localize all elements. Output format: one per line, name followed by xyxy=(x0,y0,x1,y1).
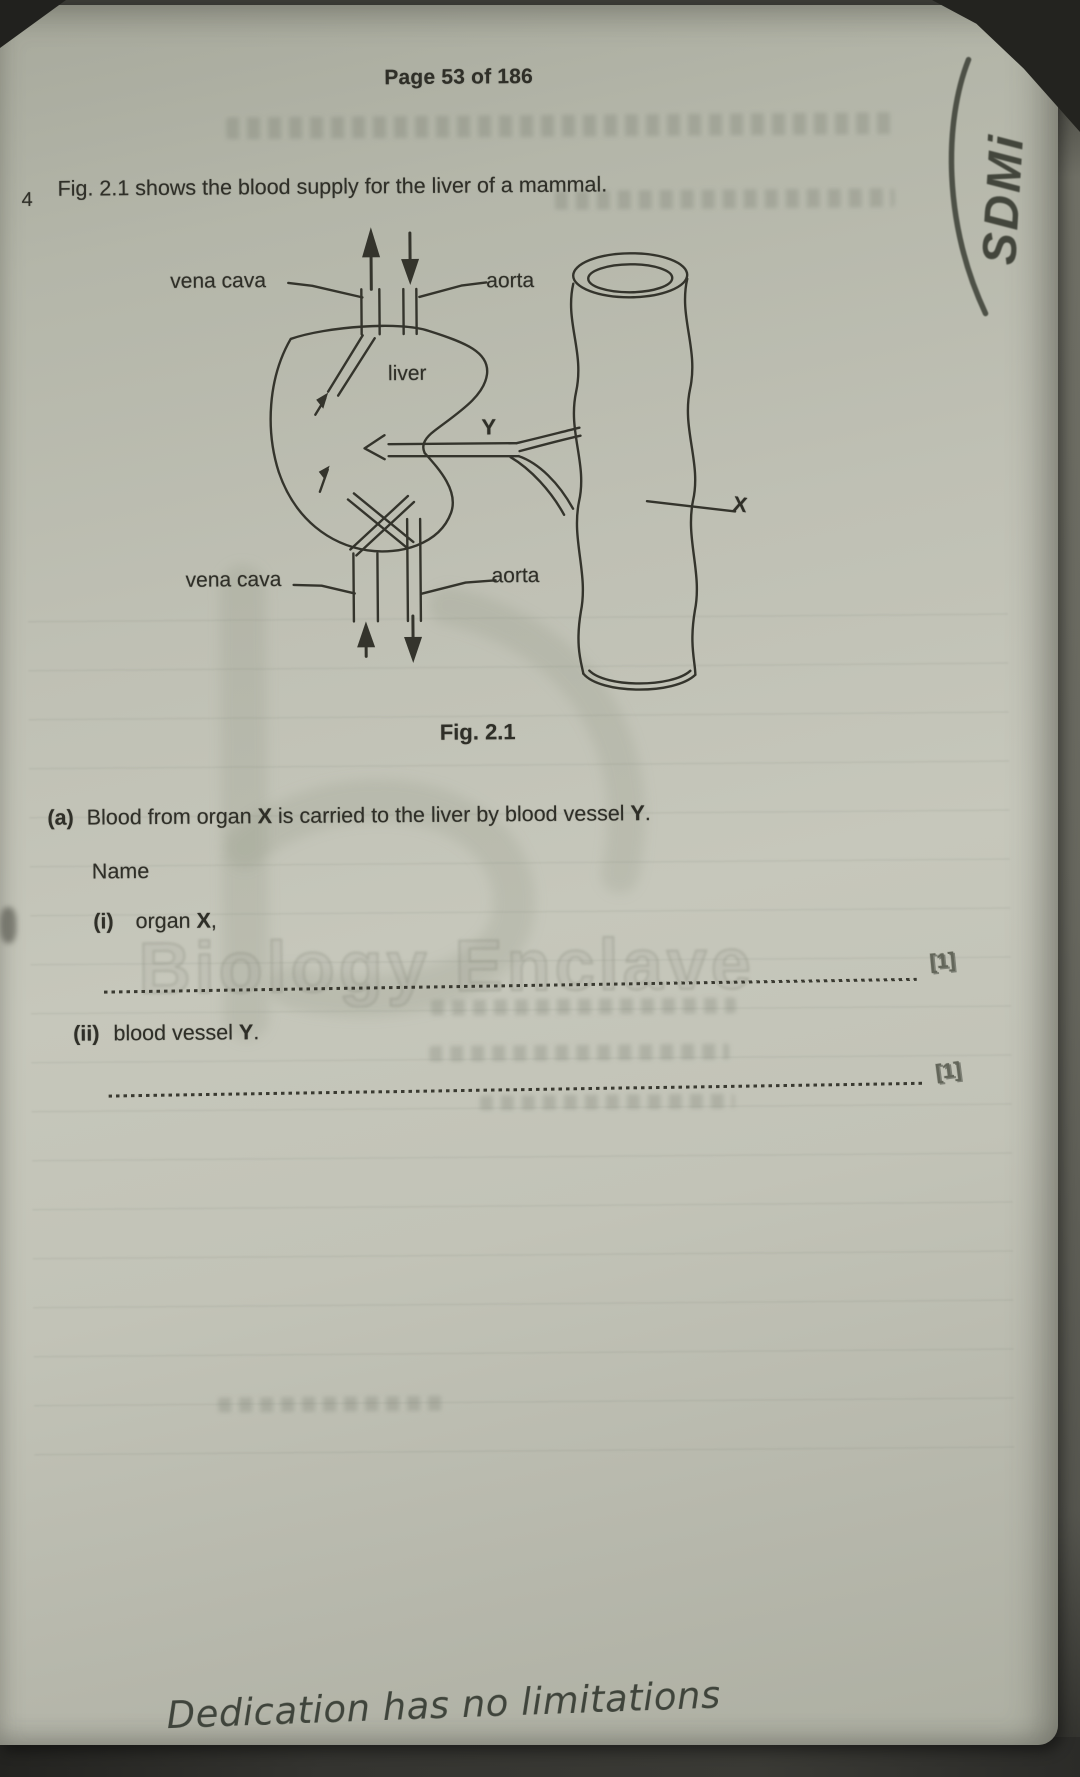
part-a-item-i: (i)organ X, xyxy=(93,909,217,935)
item-i-text: organ xyxy=(135,909,196,933)
watermark-text: Biology Enclave xyxy=(138,923,755,1010)
corner-signature-text: SDMi xyxy=(972,131,1035,266)
marks-i: [1] xyxy=(929,949,957,975)
name-heading: Name xyxy=(92,859,150,884)
label-aorta-top: aorta xyxy=(486,269,534,293)
label-vena-cava-bottom: vena cava xyxy=(186,568,282,593)
label-vena-cava-top: vena cava xyxy=(170,269,266,294)
photographed-exam-page: Biology Enclave Page 53 of 186 4 Fig. 2.… xyxy=(0,0,1080,1777)
part-a-sentence: (a)Blood from organ X is carried to the … xyxy=(47,801,651,831)
part-a-text-end: . xyxy=(645,801,651,825)
vena-cava-top-vessel xyxy=(327,289,380,395)
label-liver: liver xyxy=(388,362,427,386)
question-intro: Fig. 2.1 shows the blood supply for the … xyxy=(57,172,607,201)
page-indicator: Page 53 of 186 xyxy=(334,65,584,91)
part-a-text-mid: is carried to the liver by blood vessel xyxy=(272,801,631,828)
label-aorta-bottom: aorta xyxy=(491,564,539,588)
item-ii-bold: Y xyxy=(239,1020,254,1044)
internal-vessels xyxy=(348,493,414,556)
portal-vein-y xyxy=(364,428,581,517)
question-number: 4 xyxy=(22,189,33,212)
marks-ii: [1] xyxy=(934,1058,963,1085)
part-a-label: (a) xyxy=(47,806,73,830)
edge-smudge xyxy=(0,907,16,943)
item-i-suffix: , xyxy=(211,909,217,933)
part-a-item-ii: (ii)blood vessel Y. xyxy=(73,1020,259,1046)
item-ii-text: blood vessel xyxy=(113,1020,239,1045)
intestine-tube xyxy=(571,253,698,690)
figure-caption: Fig. 2.1 xyxy=(440,719,516,746)
aorta-bottom-vessel xyxy=(407,519,421,621)
part-a-text-y: Y xyxy=(630,801,645,825)
part-a-text-pre: Blood from organ xyxy=(87,804,258,829)
corner-signature: SDMi xyxy=(942,113,1058,284)
item-ii-suffix: . xyxy=(253,1020,259,1044)
page-content: Biology Enclave Page 53 of 186 4 Fig. 2.… xyxy=(0,5,1058,1745)
item-i-label: (i) xyxy=(93,909,113,933)
liver-flow-arrows xyxy=(315,399,328,492)
vena-cava-bottom-vessel xyxy=(353,553,378,621)
paper-sheet: Biology Enclave Page 53 of 186 4 Fig. 2.… xyxy=(0,5,1058,1745)
part-a-text-x: X xyxy=(258,804,273,828)
item-i-bold: X xyxy=(196,909,211,933)
handwritten-quote: Dedication has no limitations xyxy=(166,1673,722,1737)
bleedthrough-row xyxy=(226,112,894,139)
label-vessel-y: Y xyxy=(481,414,496,440)
item-ii-label: (ii) xyxy=(73,1021,99,1045)
